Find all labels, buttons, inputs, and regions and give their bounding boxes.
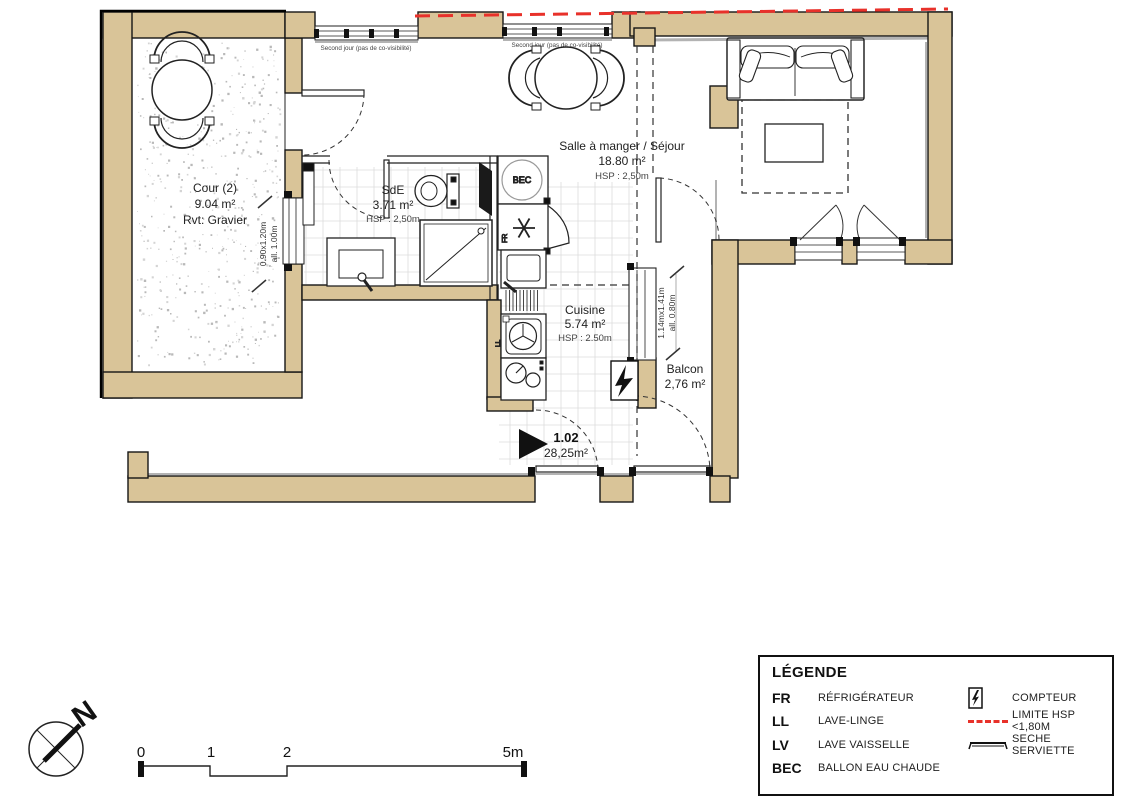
drain-rack: [506, 290, 538, 311]
sde-area: 3.71 m²: [373, 198, 414, 212]
sejour-area: 18.80 m²: [598, 154, 645, 168]
north-compass: N: [29, 694, 103, 776]
door-sejour-balcon-leaf: [656, 178, 661, 242]
scale-bar: 0 1 2 5m: [137, 744, 527, 777]
sofa: [727, 38, 864, 100]
sejour-furniture: [509, 38, 864, 193]
unit-number: 1.02: [553, 430, 578, 445]
cuisine-name: Cuisine: [565, 303, 605, 317]
legend-label-lave-linge: LAVE-LINGE: [818, 715, 968, 727]
coffee-table: [765, 124, 823, 162]
legend-label-compteur: COMPTEUR: [1012, 692, 1112, 704]
sde-name: SdE: [382, 183, 405, 197]
sde-hsp: HSP : 2,50m: [366, 214, 420, 225]
dining-table: [535, 47, 597, 109]
dim-window-balcon-sill: all. 0.80m: [667, 295, 677, 332]
shower: [420, 220, 492, 286]
legend-title: LÉGENDE: [772, 664, 1112, 681]
dim-window-balcon-size: 1.14mx1.41m: [656, 287, 666, 339]
cuisine-hsp: HSP : 2.50m: [558, 333, 612, 344]
sejour-hsp: HSP : 2,50m: [595, 171, 649, 182]
floor-plan-page: { "plan": { "rooms": [ {"name": "Cour (2…: [0, 0, 1135, 800]
cour-finish: Rvt: Gravier: [183, 213, 247, 227]
legend-label-refrigerateur: RÉFRIGÉRATEUR: [818, 692, 968, 704]
sejour-name: Salle à manger / Séjour: [559, 139, 684, 153]
kitchen-fixtures: LL: [495, 250, 546, 400]
legend-abbr-lv: LV: [772, 737, 818, 753]
unit-total-area: 28,25m²: [544, 446, 588, 460]
dim-window-cour-sill: all. 1.00m: [269, 226, 279, 263]
legend-label-lave-vaisselle: LAVE VAISSELLE: [818, 739, 968, 751]
scale-1: 1: [207, 744, 215, 761]
stove: [501, 358, 546, 400]
legend-abbr-ll: LL: [772, 713, 818, 729]
cuisine-area: 5.74 m²: [565, 317, 606, 331]
sde-duct: [303, 163, 314, 225]
ll-tag: LL: [495, 339, 502, 347]
bathroom-sink: [327, 238, 395, 291]
window-second-jour-1: [314, 26, 418, 40]
seche-serviette: [479, 162, 492, 216]
entrance-door-leaf: [536, 466, 598, 472]
sde-fixtures: [302, 156, 498, 300]
bec-fr-column: BEC FR: [498, 156, 550, 254]
limite-hsp-line-icon: [968, 720, 1012, 723]
second-jour-note-1: Second jour (pas de co-visibilité): [321, 45, 412, 52]
north-label: N: [66, 694, 103, 733]
legend-abbr-fr: FR: [772, 690, 818, 706]
legend-label-ballon-eau-chaude: BALLON EAU CHAUDE: [818, 762, 968, 774]
compteur-icon: [968, 687, 1012, 709]
balcon-name: Balcon: [667, 362, 704, 376]
scale-0: 0: [137, 744, 145, 761]
seche-serviette-icon: [968, 739, 1012, 751]
kitchen-sink: [501, 250, 546, 292]
bec-tag: BEC: [513, 175, 532, 185]
cour-area: 9.04 m²: [195, 197, 236, 211]
legend-box: LÉGENDE FR RÉFRIGÉRATEUR COMPTEUR LL LAV…: [758, 655, 1114, 796]
scale-5m: 5m: [503, 744, 524, 761]
window-second-jour-2: [502, 24, 612, 38]
toilet: [415, 174, 459, 208]
cour-name: Cour (2): [193, 181, 237, 195]
fr-tag: FR: [502, 234, 509, 243]
legend-label-limite-hsp: LIMITE HSP <1,80M: [1012, 709, 1112, 733]
washing-machine: [501, 314, 546, 358]
door-cour-leaf: [302, 90, 364, 96]
patio-table: [152, 60, 212, 120]
kitchen-door-leaf: [547, 205, 569, 249]
legend-label-seche-serviette: SECHE SERVIETTE: [1012, 733, 1112, 757]
compteur: [611, 361, 638, 400]
scale-2: 2: [283, 744, 291, 761]
legend-grid: FR RÉFRIGÉRATEUR COMPTEUR LL LAVE-LINGE …: [772, 686, 1112, 780]
balcon-area: 2,76 m²: [665, 377, 706, 391]
balcony-lower-door-leaf: [634, 466, 710, 472]
dim-window-cour-size: 0.90x1.20m: [258, 222, 268, 266]
legend-abbr-bec: BEC: [772, 760, 818, 776]
